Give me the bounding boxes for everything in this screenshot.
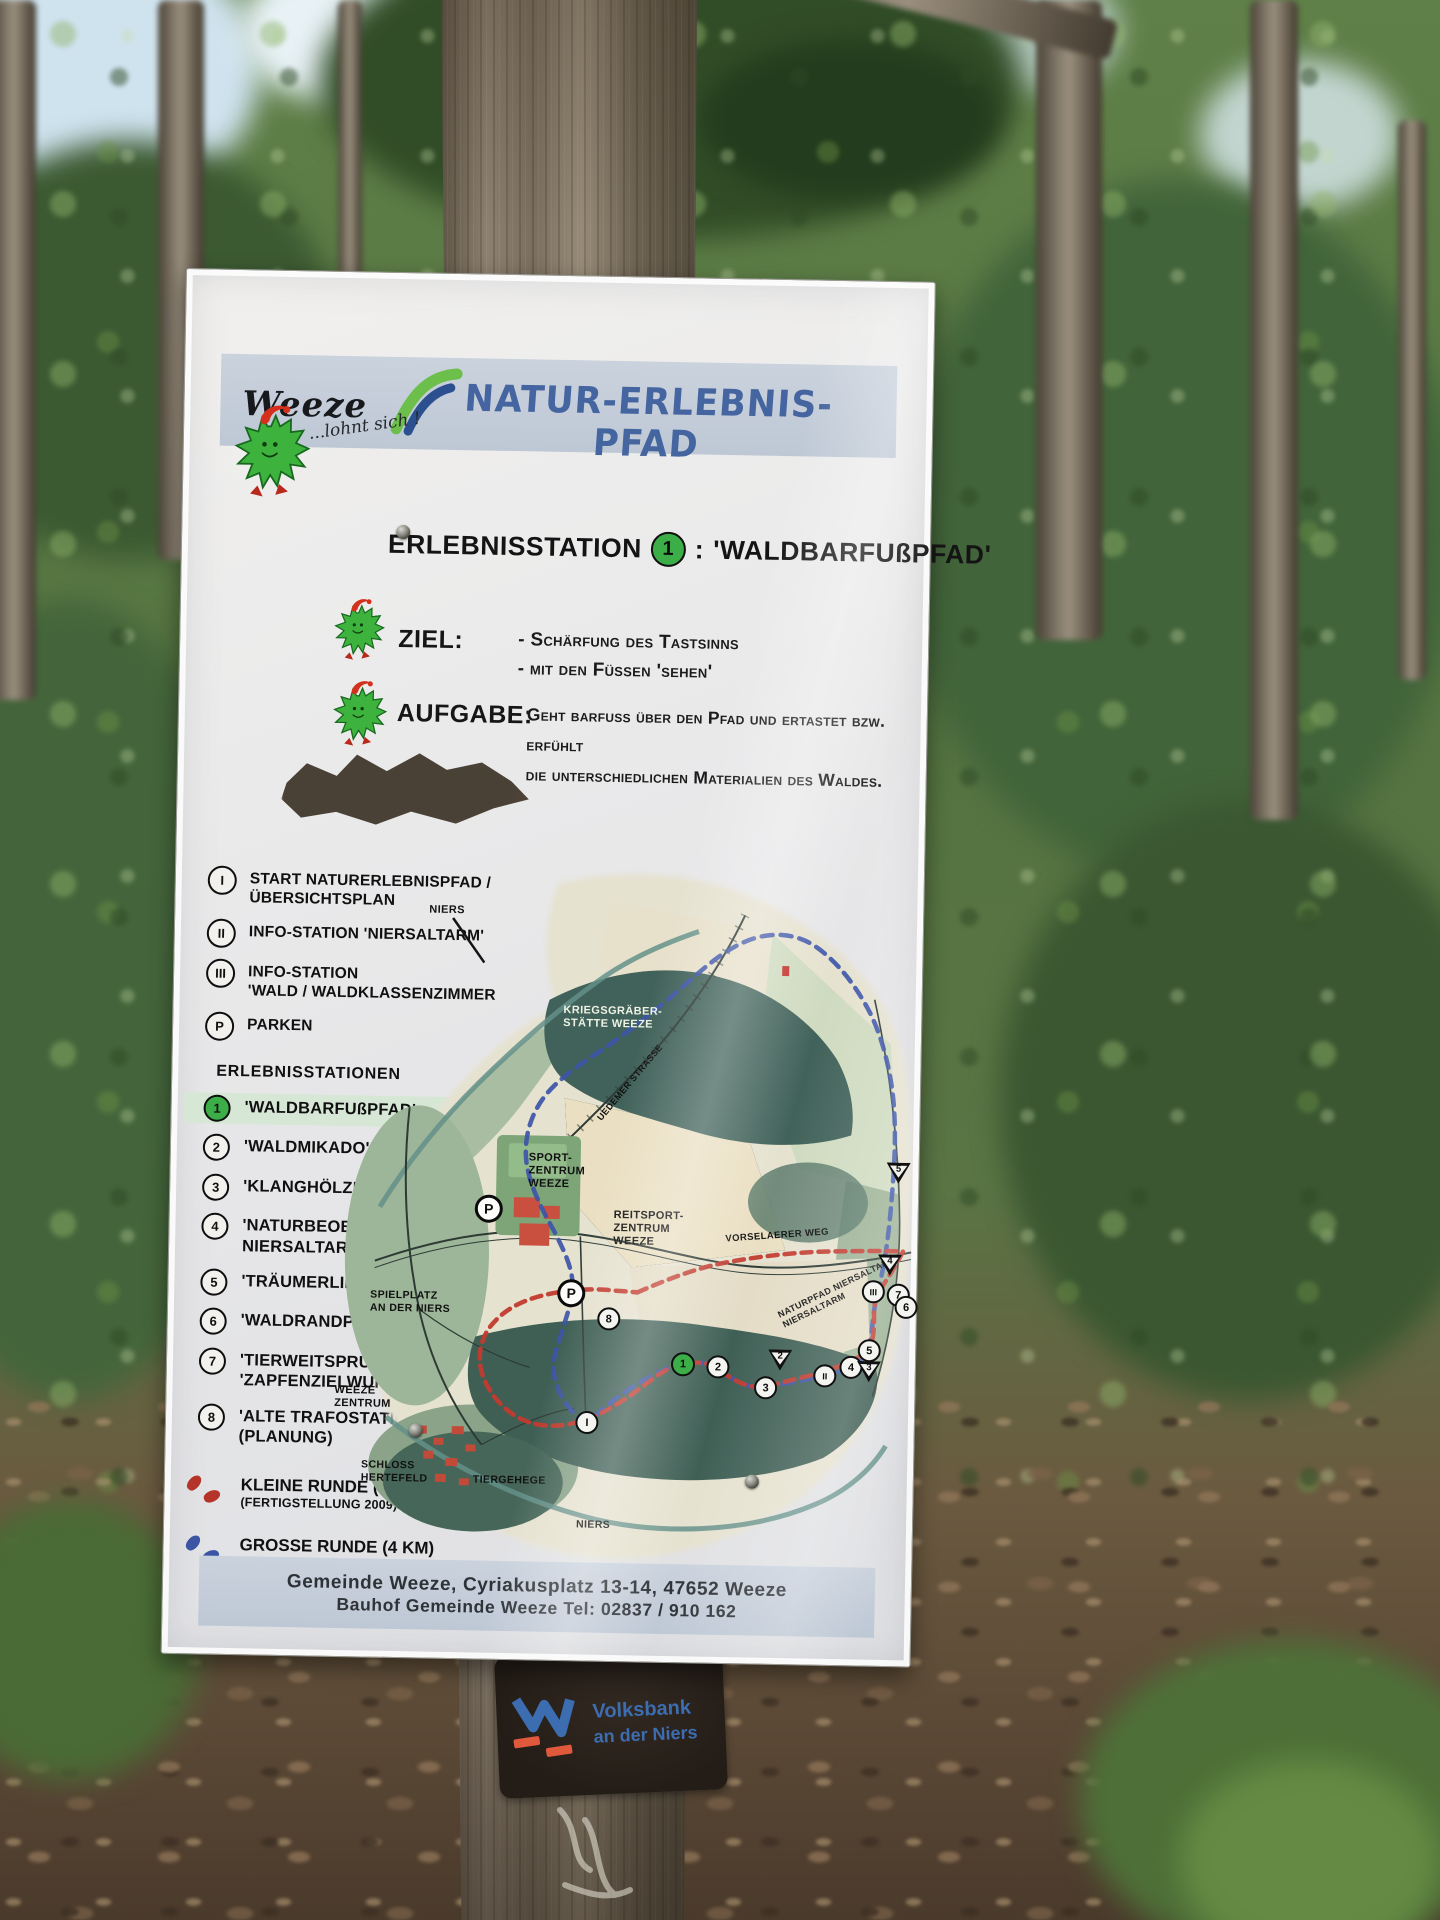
volksbank-sticker: Volksbank an der Niers xyxy=(494,1647,728,1799)
leaf-dwarf-mascot xyxy=(326,680,391,748)
trail-map: NIERSKRIEGSGRÄBER- STÄTTE WEEZESPORT- ZE… xyxy=(321,864,919,1575)
station-heading-name: 'WALDBARFUßPFAD' xyxy=(713,535,992,571)
footprint xyxy=(185,1473,204,1493)
footer-band: Gemeinde Weeze, Cyriakusplatz 13-14, 476… xyxy=(198,1555,875,1637)
sticker-brand: Volksbank xyxy=(592,1697,691,1724)
station-number: 6 xyxy=(199,1308,226,1335)
legend-symbol: P xyxy=(205,1011,235,1041)
station-number: 2 xyxy=(203,1133,230,1160)
station-number: 3 xyxy=(202,1173,229,1200)
leaf-dwarf-mascot xyxy=(225,404,317,500)
tree-trunk xyxy=(338,0,362,280)
sign-title: NATUR-ERLEBNIS-PFAD xyxy=(409,377,885,470)
station-marker: 3 xyxy=(754,1376,777,1399)
header-band: Weeze ...lohnt sich ! NATUR-ERLEBNIS-PFA… xyxy=(220,354,898,458)
triangle-marker: 5 xyxy=(886,1162,910,1183)
triangle-marker-number: 3 xyxy=(866,1362,871,1373)
parking-marker: P xyxy=(557,1279,586,1308)
station-marker: III xyxy=(862,1280,885,1303)
footprint xyxy=(202,1487,222,1504)
trail-information-sign: Weeze ...lohnt sich ! NATUR-ERLEBNIS-PFA… xyxy=(161,268,936,1668)
triangle-marker: 4 xyxy=(878,1254,902,1275)
ziel-text: - Schärfung des Tastsinns - mit den Füss… xyxy=(517,625,739,688)
forest-photo-scene: Volksbank an der Niers Weeze ...lohnt si… xyxy=(0,0,1440,1920)
tree-trunk xyxy=(0,0,36,700)
tree-trunk xyxy=(1036,0,1102,640)
station-marker: 8 xyxy=(597,1307,620,1330)
triangle-marker-number: 2 xyxy=(777,1351,782,1362)
paint-smudge xyxy=(281,747,532,832)
station-marker: 4 xyxy=(839,1356,862,1379)
chalk-graffiti xyxy=(540,1800,650,1920)
footprints-icon xyxy=(184,1474,231,1509)
station-number: 8 xyxy=(198,1403,225,1430)
station-marker: I xyxy=(575,1411,598,1434)
station-marker: 5 xyxy=(858,1339,881,1362)
station-number: 1 xyxy=(203,1094,230,1121)
leaf-dwarf-mascot xyxy=(328,598,389,662)
sticker-brand-sub: an der Niers xyxy=(593,1722,698,1748)
station-heading-separator: : xyxy=(694,534,704,565)
footprint xyxy=(183,1533,202,1553)
triangle-marker: 2 xyxy=(768,1349,792,1370)
station-number: 5 xyxy=(200,1268,227,1295)
ziel-label: ZIEL: xyxy=(398,625,464,655)
triangle-marker-number: 5 xyxy=(896,1164,901,1175)
legend-symbol: I xyxy=(208,866,238,896)
volksbank-logo-icon xyxy=(510,1691,591,1764)
station-number: 7 xyxy=(199,1347,226,1374)
station-marker-active: 1 xyxy=(671,1352,695,1376)
map-markers-layer: PP8I1232II435III7645 xyxy=(321,864,919,1575)
station-number: 4 xyxy=(201,1212,228,1239)
station-number-badge: 1 xyxy=(650,532,686,568)
legend-symbol: III xyxy=(206,958,236,988)
aufgabe-text: Geht barfuss über den Pfad und ertastet … xyxy=(525,700,927,797)
legend-symbol: II xyxy=(207,918,237,948)
legend-item-label: PARKEN xyxy=(247,1012,313,1036)
tree-trunk xyxy=(1398,120,1426,680)
aufgabe-label: AUFGABE: xyxy=(397,699,533,730)
station-marker: 2 xyxy=(706,1355,729,1378)
station-heading-prefix: ERLEBNISSTATION xyxy=(388,529,642,565)
tree-trunk xyxy=(1250,0,1298,820)
parking-marker: P xyxy=(475,1194,504,1223)
station-heading: ERLEBNISSTATION 1 : 'WALDBARFUßPFAD' xyxy=(388,527,992,573)
triangle-marker-number: 4 xyxy=(887,1256,892,1267)
station-marker: II xyxy=(813,1364,836,1387)
station-marker: 6 xyxy=(894,1296,917,1319)
